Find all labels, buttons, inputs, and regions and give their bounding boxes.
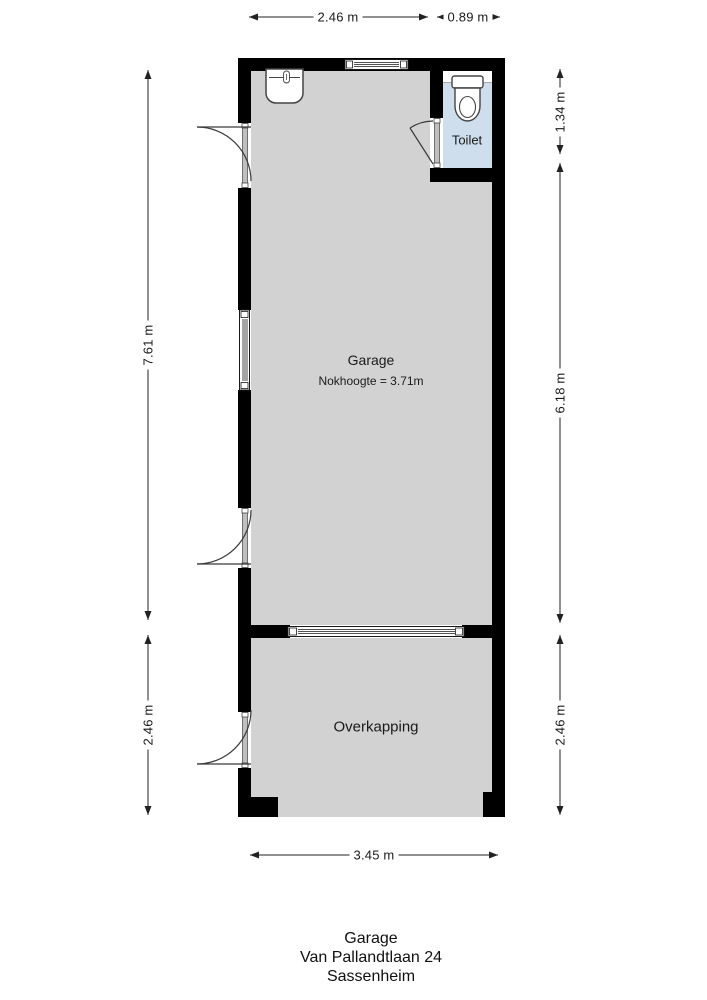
wall-left-4 [238,568,251,712]
doorway-toilet [430,118,443,168]
toilet-room-label: Toilet [452,133,482,148]
pillar-bottom-right [483,792,505,817]
wall-left-3 [238,390,251,508]
dim-label-right-overkapping: 2.46 m [553,701,568,750]
plan-title-name: Garage [300,929,442,948]
window-top-icon [345,60,408,70]
dim-label-top-main: 2.46 m [314,10,363,25]
wall-left-2 [238,188,251,310]
dim-label-top-toilet: 0.89 m [444,10,493,25]
wall-left-1 [238,58,251,123]
doorway-left-2 [238,508,251,568]
plan-title-address: Van Pallandtlaan 24 [300,948,442,967]
doorway-left-3 [238,712,251,768]
overkapping-room-label: Overkapping [333,719,418,736]
plan-title-block: Garage Van Pallandtlaan 24 Sassenheim [300,929,442,986]
dim-label-right-garage: 6.18 m [553,369,568,418]
wall-separation-right-stub [462,625,505,638]
window-left-icon [240,310,250,390]
wall-separation-left-stub [238,625,290,638]
dim-label-left-garage: 7.61 m [141,321,156,370]
sink-icon [266,69,303,103]
dim-label-bottom: 3.45 m [350,848,399,863]
window-separation-icon [288,627,464,637]
dim-label-right-toilet: 1.34 m [553,88,568,137]
wall-toilet-left-upper [430,58,443,118]
dim-label-left-overkapping: 2.46 m [141,701,156,750]
garage-ridge-height-label: Nokhoogte = 3.71m [318,374,423,388]
floor-areas [251,71,492,817]
floorplan-page: 2.46 m 0.89 m 3.45 m 7.61 m 2.46 m 1.34 … [0,0,707,1000]
plan-title-city: Sassenheim [300,967,442,986]
wall-toilet-bottom [430,168,505,182]
pillar-bottom-left [238,797,278,817]
toilet-icon [452,76,483,121]
garage-room-label: Garage [348,352,395,368]
